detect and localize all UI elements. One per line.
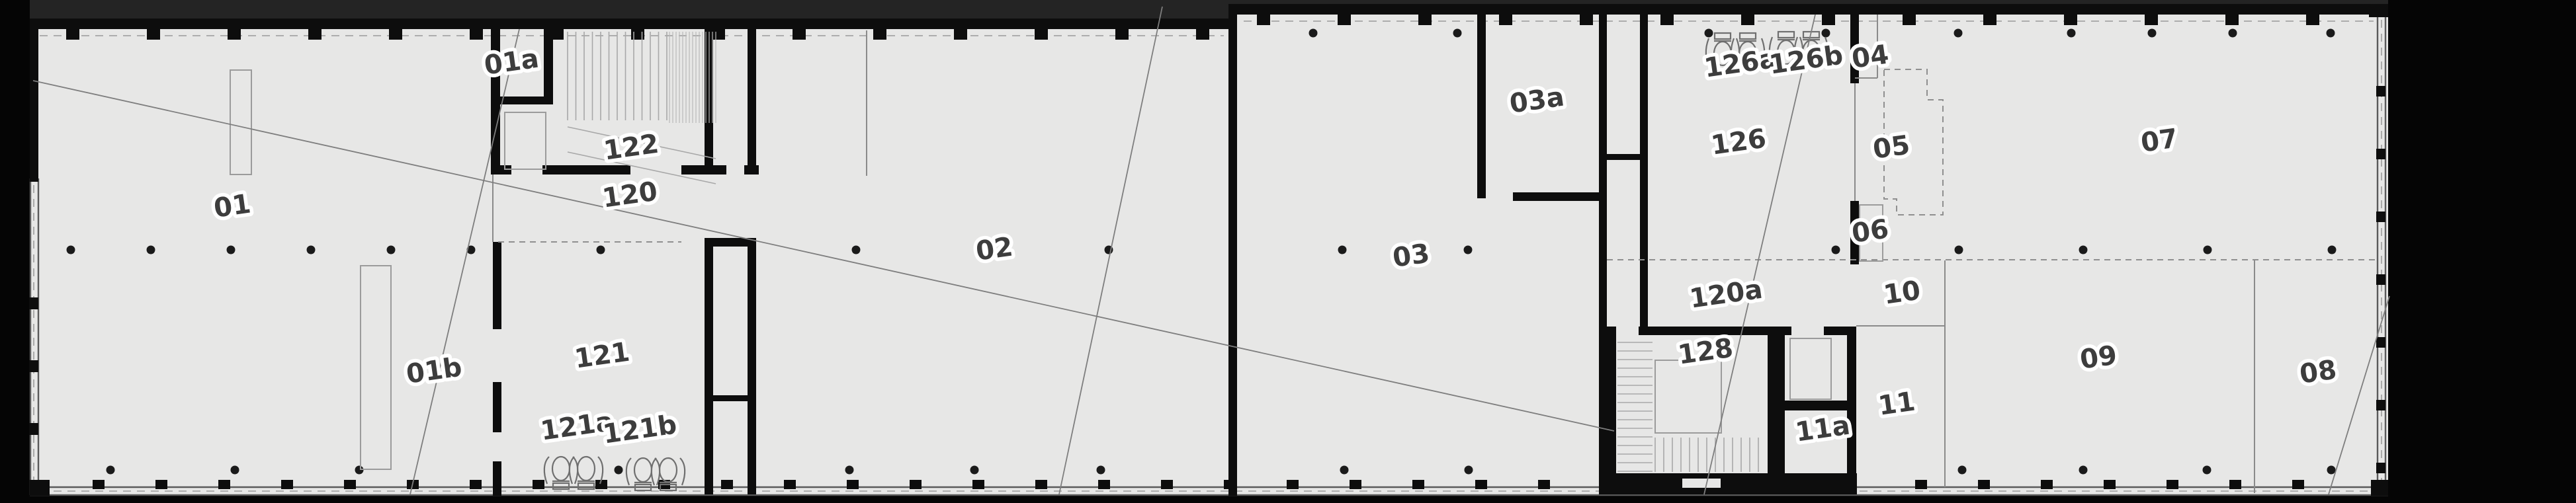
column-dot — [1465, 466, 1473, 475]
column-dot — [2067, 29, 2076, 38]
core-door-notch — [1682, 479, 1721, 488]
column-dot — [1453, 29, 1462, 38]
room-label-10: 10 — [1881, 275, 1922, 310]
column-dot — [147, 246, 155, 254]
floor-slabs — [30, 4, 2388, 496]
column-dot — [1705, 29, 1713, 38]
column-dot — [1822, 29, 1830, 38]
column-dot — [1309, 29, 1318, 38]
room-label-07: 07 — [2139, 123, 2180, 158]
column-dot — [2203, 466, 2211, 475]
column-dot — [1954, 29, 1963, 38]
column-dot — [2079, 246, 2088, 254]
column-dot — [970, 466, 979, 475]
room-label-02: 02 — [974, 231, 1015, 266]
column-dot — [1097, 466, 1105, 475]
column-dot — [1832, 246, 1840, 254]
column-dot — [1464, 246, 1473, 254]
column-dot — [2229, 29, 2237, 38]
room-label-04: 04 — [1850, 39, 1891, 74]
column-dot — [1958, 466, 1967, 475]
column-dot — [852, 246, 861, 254]
column-dot — [307, 246, 316, 254]
column-dot — [67, 246, 75, 254]
room-label-06: 06 — [1850, 213, 1891, 249]
column-dot — [2327, 29, 2335, 38]
column-dot — [1955, 246, 1963, 254]
column-dot — [107, 466, 115, 475]
room-label-08: 08 — [2297, 354, 2339, 389]
column-dot — [597, 246, 605, 254]
column-dot — [227, 246, 236, 254]
column-dot — [2328, 246, 2337, 254]
floor-plan-image: 0101a01b020303a040506070809101111a120120… — [0, 0, 2576, 503]
floor-plan-screenshot: 0101a01b020303a040506070809101111a120120… — [0, 0, 2576, 503]
column-dot — [2204, 246, 2212, 254]
room-label-01: 01 — [212, 188, 253, 223]
room-label-09: 09 — [2078, 340, 2119, 375]
column-dot — [231, 466, 239, 475]
room-label-03: 03 — [1391, 238, 1432, 273]
room-label-05: 05 — [1871, 130, 1912, 165]
top-band-left — [30, 0, 1234, 20]
column-dot — [2079, 466, 2088, 475]
column-dot — [1340, 466, 1349, 475]
column-dot — [845, 466, 854, 475]
column-dot — [2148, 29, 2157, 38]
column-dot — [1338, 246, 1347, 254]
room-label-11: 11 — [1876, 386, 1917, 421]
column-dot — [387, 246, 396, 254]
column-dot — [615, 466, 623, 475]
column-dot — [2327, 466, 2336, 475]
